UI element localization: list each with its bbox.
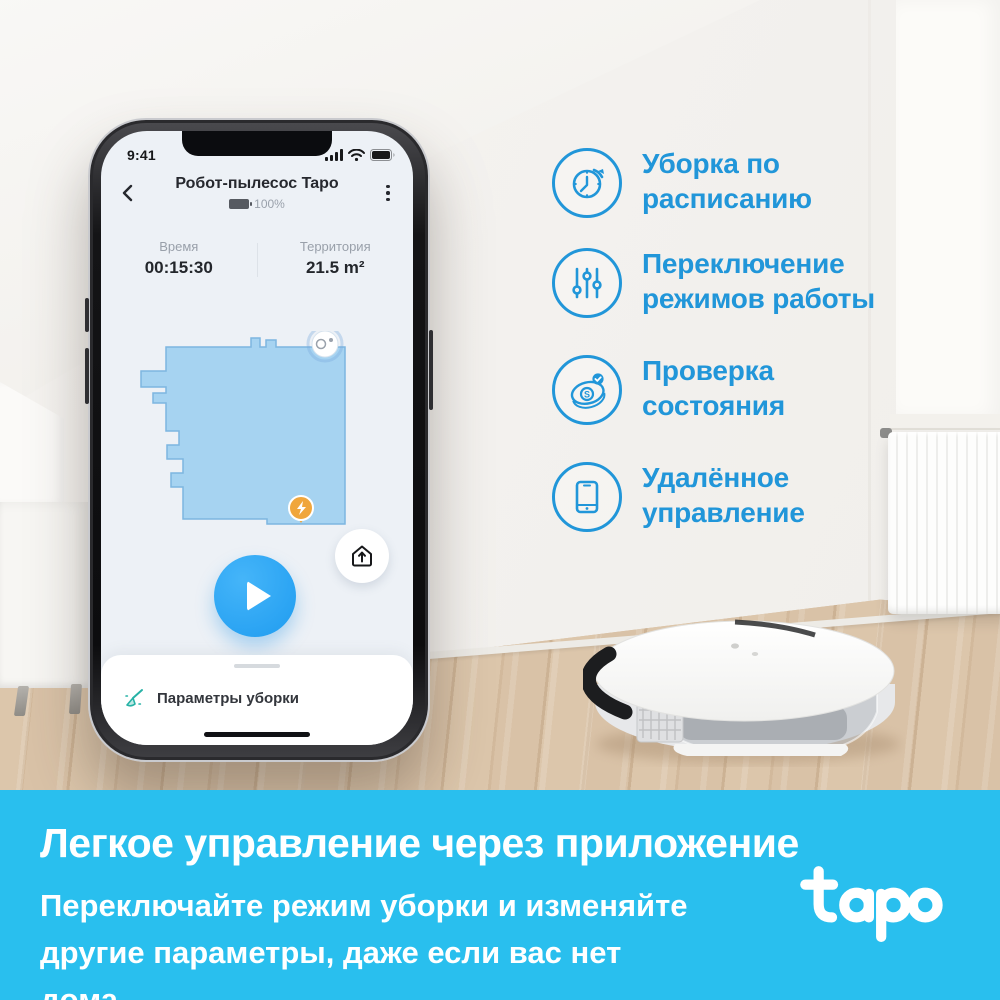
battery-full-icon xyxy=(229,199,249,209)
marketing-image: 9:41 xyxy=(0,0,1000,1000)
window-sill xyxy=(890,414,1000,430)
feature-label: Уборка по расписанию xyxy=(642,146,892,216)
cleaning-map[interactable] xyxy=(127,331,387,531)
power-button xyxy=(429,330,433,410)
robot-top xyxy=(594,621,894,721)
volume-button xyxy=(85,298,89,332)
stat-value: 00:15:30 xyxy=(101,258,257,278)
volume-button xyxy=(85,348,89,404)
feature-label: Удалённое управление xyxy=(642,460,892,530)
battery-percent: 100% xyxy=(254,197,285,211)
feature-remote: Удалённое управление xyxy=(552,462,892,532)
remote-phone-icon xyxy=(552,462,622,532)
home-indicator[interactable] xyxy=(204,732,310,737)
battery-icon xyxy=(370,149,395,161)
radiator xyxy=(888,432,1000,614)
broom-icon xyxy=(123,687,145,709)
app-header: Робот-пылесос Tapo 100% xyxy=(101,175,413,211)
drag-handle[interactable] xyxy=(234,664,280,668)
stat-area: Территория 21.5 m² xyxy=(258,239,414,278)
feature-schedule: Уборка по расписанию xyxy=(552,148,892,218)
window-light xyxy=(896,0,1000,418)
home-dock-icon xyxy=(349,543,375,569)
robot-position-marker xyxy=(308,331,342,361)
stat-label: Территория xyxy=(258,239,414,254)
feature-modes: Переключение режимов работы xyxy=(552,248,892,318)
cleaning-settings-row[interactable]: Параметры уборки xyxy=(123,687,299,709)
kebab-menu-button[interactable] xyxy=(377,181,399,205)
robot-sensor xyxy=(731,643,739,648)
stat-time: Время 00:15:30 xyxy=(101,239,257,278)
back-button[interactable] xyxy=(117,181,141,205)
play-icon xyxy=(247,581,271,611)
map-room-area xyxy=(141,338,345,524)
phone-notch xyxy=(182,131,332,156)
feature-status: S Проверка состояния xyxy=(552,355,892,425)
mode-sliders-icon xyxy=(552,248,622,318)
cabinet-leg xyxy=(69,684,82,714)
bottom-banner: Легкое управление через приложение Перек… xyxy=(0,790,1000,1000)
robot-base-lip xyxy=(674,744,849,756)
phone-mockup: 9:41 xyxy=(88,118,430,762)
banner-title: Легкое управление через приложение xyxy=(40,820,799,867)
feature-label: Переключение режимов работы xyxy=(642,246,892,316)
banner-subtitle: Переключайте режим уборки и изменяйте др… xyxy=(40,882,700,1000)
feature-label: Проверка состояния xyxy=(642,353,892,423)
status-check-icon: S xyxy=(552,355,622,425)
robot-sensor xyxy=(752,652,758,656)
stat-label: Время xyxy=(101,239,257,254)
cabinet xyxy=(0,502,92,688)
svg-text:S: S xyxy=(584,390,590,400)
schedule-clock-icon xyxy=(552,148,622,218)
cleaning-settings-label: Параметры уборки xyxy=(157,690,299,707)
chevron-left-icon xyxy=(117,181,141,205)
stats-row: Время 00:15:30 Территория 21.5 m² xyxy=(101,239,413,278)
wifi-icon xyxy=(348,149,365,161)
start-cleaning-button[interactable] xyxy=(214,555,296,637)
status-time: 9:41 xyxy=(127,147,156,163)
page-title: Робот-пылесос Tapo xyxy=(101,175,413,193)
phone-screen: 9:41 xyxy=(101,131,413,745)
robot-vacuum-photo xyxy=(583,610,905,780)
return-to-dock-button[interactable] xyxy=(335,529,389,583)
battery-status: 100% xyxy=(101,197,413,211)
stat-value: 21.5 m² xyxy=(258,258,414,278)
tapo-logo xyxy=(794,860,954,942)
